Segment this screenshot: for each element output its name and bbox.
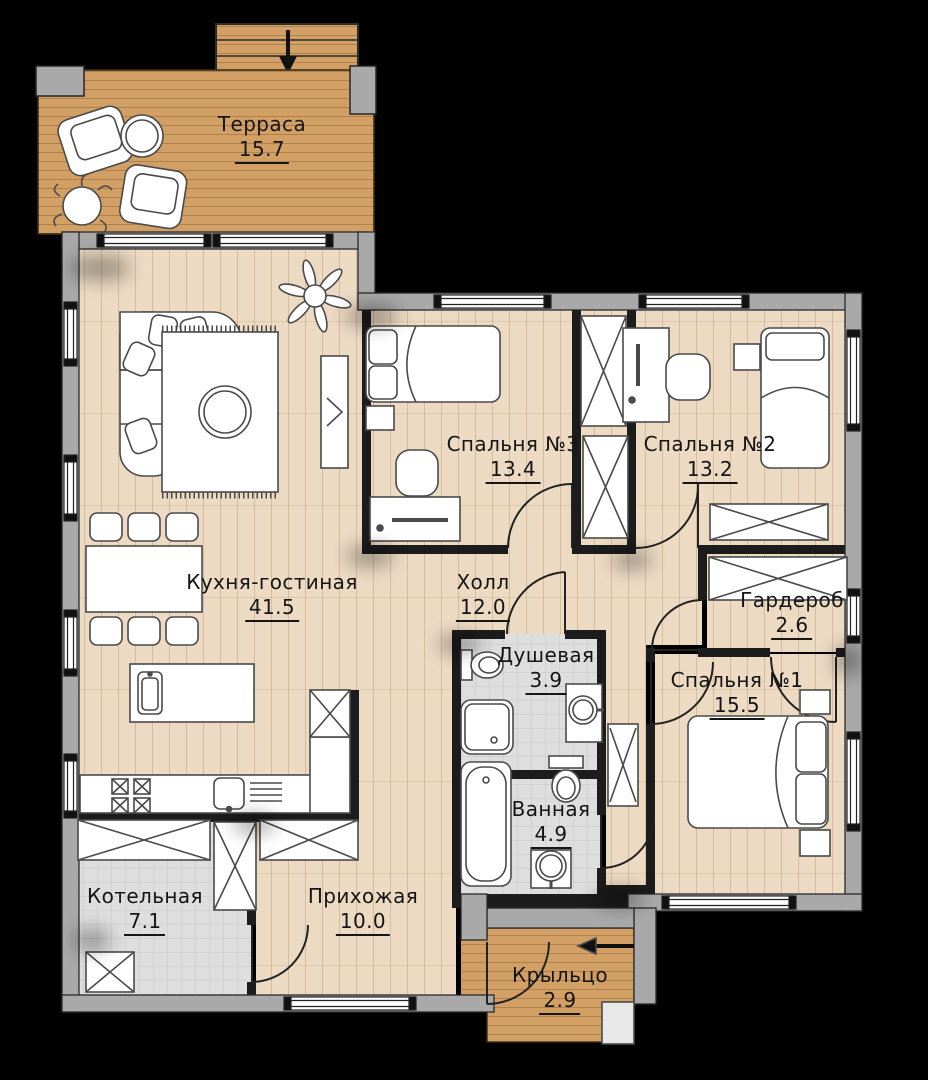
washbasin-icon (531, 850, 571, 889)
room-area: 15.5 (710, 693, 764, 719)
nightstand (366, 406, 394, 430)
room-label-entry-hall: Прихожая10.0 (308, 884, 418, 936)
room-area: 13.2 (683, 457, 737, 483)
window (64, 302, 77, 366)
dining-set (86, 513, 202, 645)
window (284, 997, 416, 1010)
terrace-armchair (118, 163, 188, 230)
tall-cabinet (310, 690, 350, 737)
hall-cabinet (608, 724, 638, 806)
bed (366, 326, 500, 402)
room-label-hall: Холл12.0 (456, 570, 510, 622)
boiler-unit (86, 952, 134, 992)
window (64, 610, 77, 676)
room-name: Холл (456, 570, 509, 594)
window (639, 295, 749, 308)
room-name: Терраса (218, 112, 306, 136)
room-area: 2.6 (771, 613, 812, 639)
window (847, 589, 860, 643)
window (97, 234, 211, 247)
coffee-table (199, 386, 251, 438)
desk (370, 497, 460, 541)
hall-passage-floor (359, 645, 452, 822)
room-area: 41.5 (245, 595, 299, 621)
room-name: Ванная (512, 797, 591, 821)
window (662, 896, 796, 909)
room-label-bathroom: Ванная4.9 (512, 797, 591, 849)
terrace-pier (350, 66, 376, 114)
room-label-boiler: Котельная7.1 (87, 884, 203, 936)
room-name: Спальня №1 (671, 668, 804, 692)
room-area: 4.9 (530, 822, 571, 848)
bathtub-icon (461, 762, 511, 886)
room-name: Душевая (498, 643, 595, 667)
window (213, 234, 333, 247)
wardrobe-cabinet (710, 504, 828, 540)
terrace-round-table (121, 115, 163, 157)
room-area: 7.1 (124, 909, 165, 935)
nightstand (734, 344, 760, 370)
room-label-terrace: Терраса15.7 (218, 112, 306, 164)
room-label-kitchen-living: Кухня-гостиная41.5 (186, 570, 358, 622)
desk (623, 328, 669, 422)
room-name: Спальня №2 (644, 432, 777, 456)
nightstand (800, 830, 830, 856)
room-name: Котельная (87, 884, 203, 908)
front-door-threshold (461, 938, 488, 1002)
room-area: 15.7 (235, 137, 289, 163)
nightstand (800, 690, 830, 714)
room-name: Прихожая (308, 884, 418, 908)
room-name: Кухня-гостиная (186, 570, 358, 594)
terrace-pier (36, 66, 84, 96)
room-label-porch: Крыльцо2.9 (512, 963, 608, 1015)
shower-tray-icon (461, 700, 513, 754)
room-name: Крыльцо (512, 963, 608, 987)
toilet-icon (549, 756, 583, 802)
window (847, 732, 860, 831)
tall-cabinet (214, 822, 256, 910)
tv-stand (321, 356, 348, 468)
closet (78, 820, 210, 860)
window (64, 754, 77, 818)
desk-chair (396, 450, 438, 496)
room-area: 10.0 (336, 909, 390, 935)
window (847, 330, 860, 431)
room-area: 3.9 (525, 668, 566, 694)
desk-chair (666, 354, 710, 400)
window (434, 295, 551, 308)
bed (688, 716, 828, 828)
kitchen-island (130, 664, 254, 722)
room-label-bedroom-1: Спальня №115.5 (671, 668, 804, 720)
room-name: Спальня №3 (447, 432, 580, 456)
room-label-shower: Душевая3.9 (498, 643, 595, 695)
room-area: 13.4 (486, 457, 540, 483)
window (64, 455, 77, 521)
room-label-bedroom-2: Спальня №213.2 (644, 432, 777, 484)
room-name: Гардероб (740, 588, 844, 612)
room-area: 2.9 (539, 988, 580, 1014)
closet (583, 436, 628, 538)
room-area: 12.0 (456, 595, 510, 621)
room-label-bedroom-3: Спальня №313.4 (447, 432, 580, 484)
room-label-wardrobe: Гардероб2.6 (740, 588, 844, 640)
closet (581, 316, 626, 426)
floor-plan-page: Терраса15.7 Кухня-гостиная41.5 Спальня №… (0, 0, 928, 1080)
